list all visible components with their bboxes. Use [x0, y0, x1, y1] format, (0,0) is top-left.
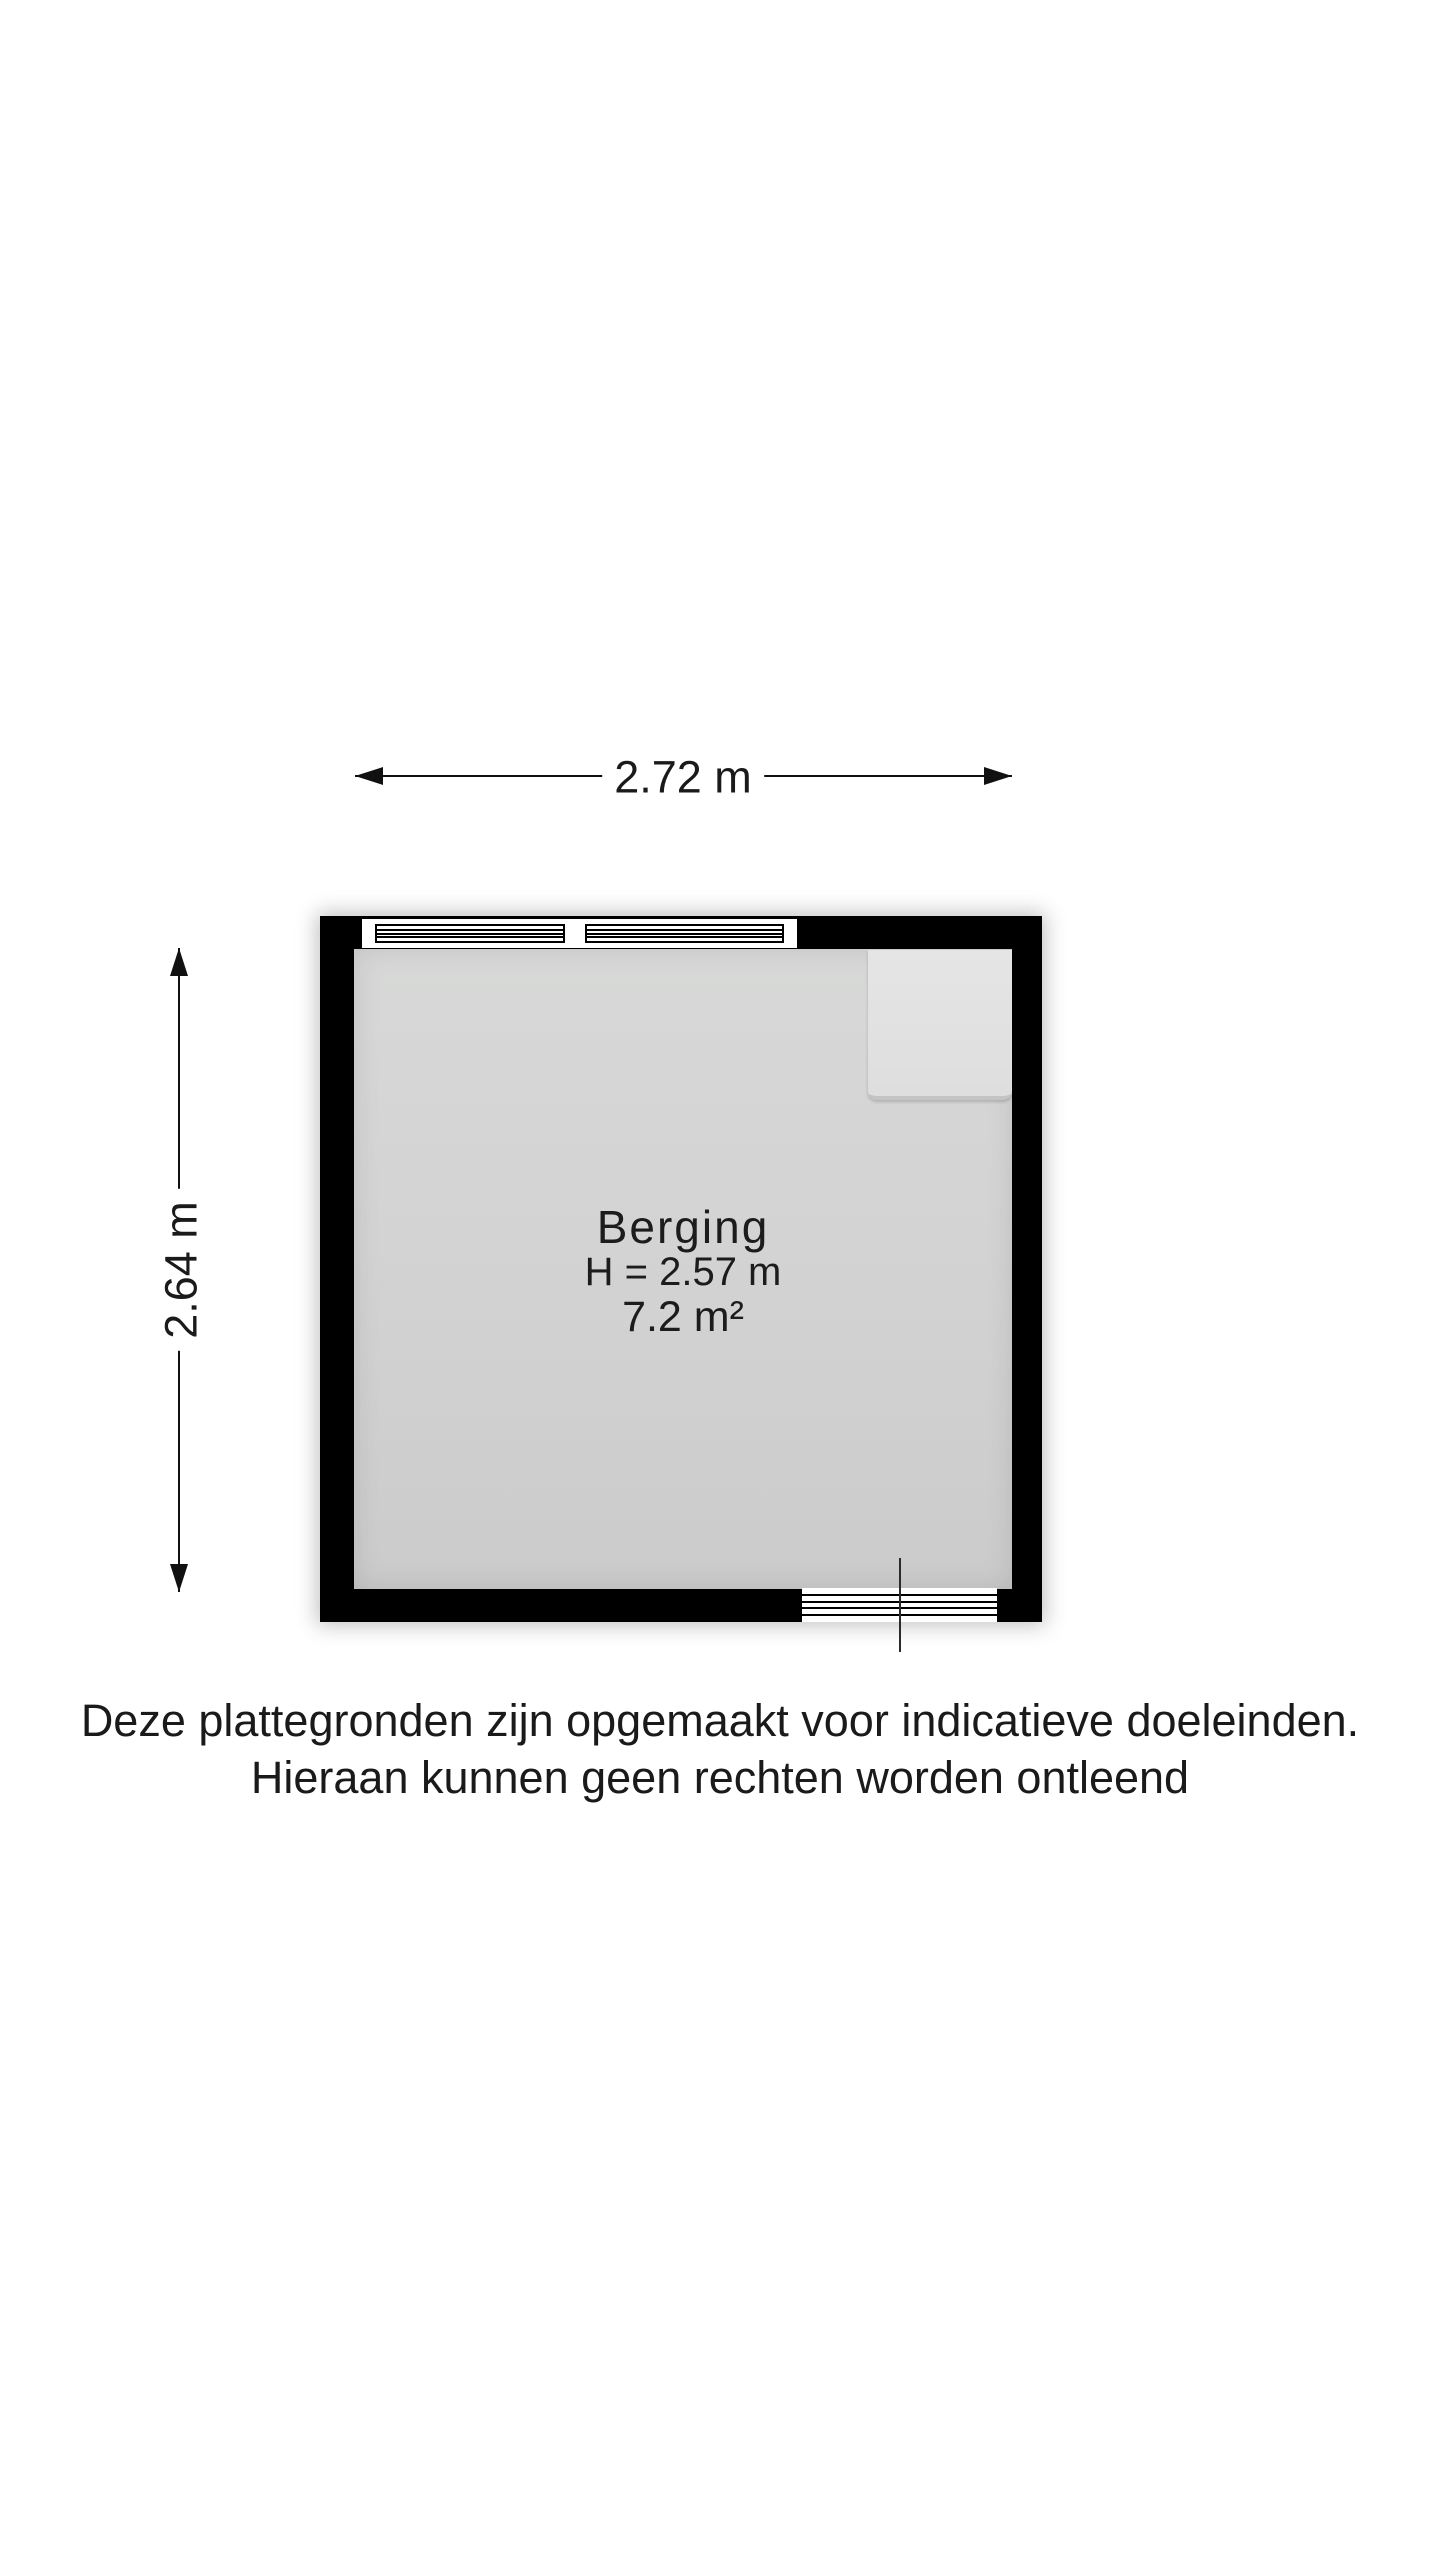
arrow-right-icon	[984, 767, 1012, 785]
room-ceiling-height: H = 2.57 m	[354, 1250, 1012, 1295]
window	[362, 919, 797, 948]
arrow-up-icon	[170, 948, 188, 976]
room-area: 7.2 m²	[354, 1295, 1012, 1340]
disclaimer-line-2: Hieraan kunnen geen rechten worden ontle…	[0, 1749, 1440, 1806]
window-mullion	[563, 924, 587, 943]
height-dimension-label: 2.64 m	[157, 1189, 206, 1351]
arrow-left-icon	[355, 767, 383, 785]
arrow-down-icon	[170, 1564, 188, 1592]
room-label-block: Berging H = 2.57 m 7.2 m²	[354, 1204, 1012, 1340]
width-dimension-label: 2.72 m	[602, 753, 764, 802]
room-name: Berging	[354, 1204, 1012, 1250]
fixture-block	[868, 950, 1012, 1100]
floorplan-walls: Berging H = 2.57 m 7.2 m²	[320, 916, 1042, 1622]
door-swing-line	[899, 1558, 901, 1652]
disclaimer-line-1: Deze plattegronden zijn opgemaakt voor i…	[0, 1692, 1440, 1749]
disclaimer: Deze plattegronden zijn opgemaakt voor i…	[0, 1692, 1440, 1806]
